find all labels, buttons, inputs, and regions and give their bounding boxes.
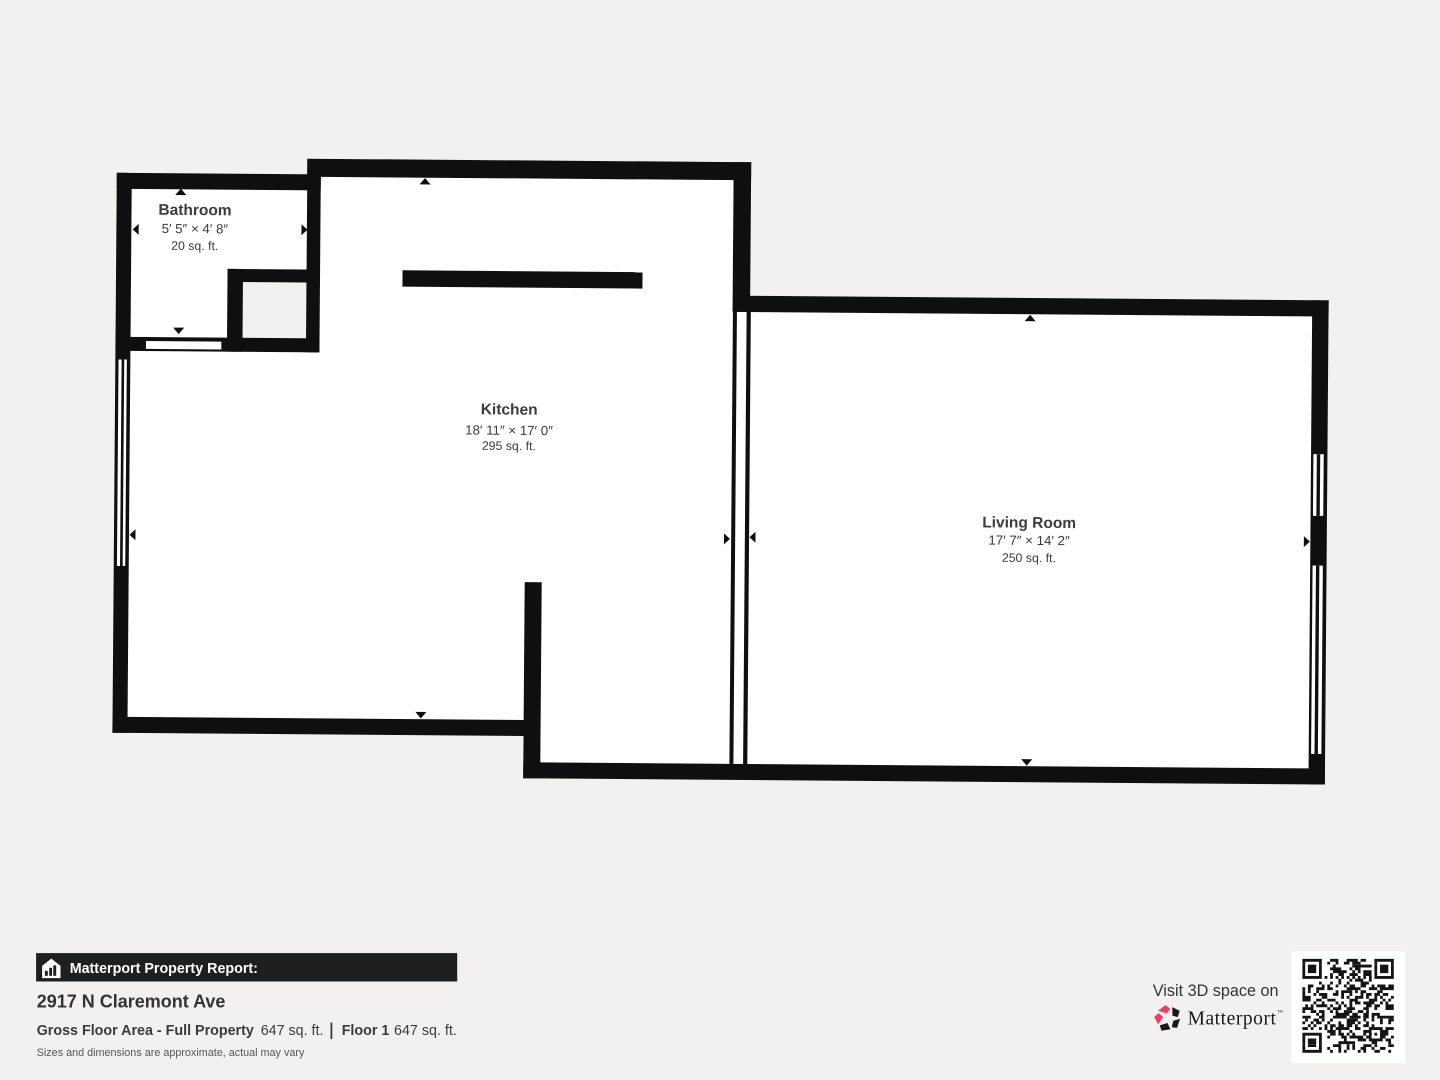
- svg-text:Kitchen: Kitchen: [481, 401, 538, 418]
- svg-text:647 sq. ft.: 647 sq. ft.: [261, 1023, 324, 1039]
- svg-text:5′ 5″ × 4′ 8″: 5′ 5″ × 4′ 8″: [162, 221, 229, 237]
- svg-text:295 sq. ft.: 295 sq. ft.: [482, 439, 536, 453]
- svg-text:2917 N Claremont Ave: 2917 N Claremont Ave: [37, 992, 226, 1012]
- svg-text:Floor 1: Floor 1: [342, 1023, 390, 1039]
- svg-text:Living Room: Living Room: [982, 514, 1076, 532]
- svg-text:Bathroom: Bathroom: [158, 202, 231, 220]
- svg-text:Visit 3D space on: Visit 3D space on: [1153, 982, 1279, 1000]
- svg-text:Gross Floor Area - Full Proper: Gross Floor Area - Full Property: [37, 1023, 254, 1039]
- svg-text:Matterport Property Report:: Matterport Property Report:: [70, 961, 258, 977]
- svg-text:Matterport: Matterport: [1188, 1009, 1277, 1030]
- svg-text:18′ 11″ × 17′ 0″: 18′ 11″ × 17′ 0″: [465, 422, 553, 438]
- svg-text:647 sq. ft.: 647 sq. ft.: [394, 1023, 457, 1039]
- svg-text:250 sq. ft.: 250 sq. ft.: [1002, 551, 1056, 565]
- svg-text:17′ 7″ × 14′ 2″: 17′ 7″ × 14′ 2″: [988, 533, 1070, 549]
- svg-text:™: ™: [1277, 1010, 1283, 1016]
- svg-text:20 sq. ft.: 20 sq. ft.: [171, 239, 218, 253]
- svg-text:Sizes and dimensions are appro: Sizes and dimensions are approximate, ac…: [37, 1047, 305, 1059]
